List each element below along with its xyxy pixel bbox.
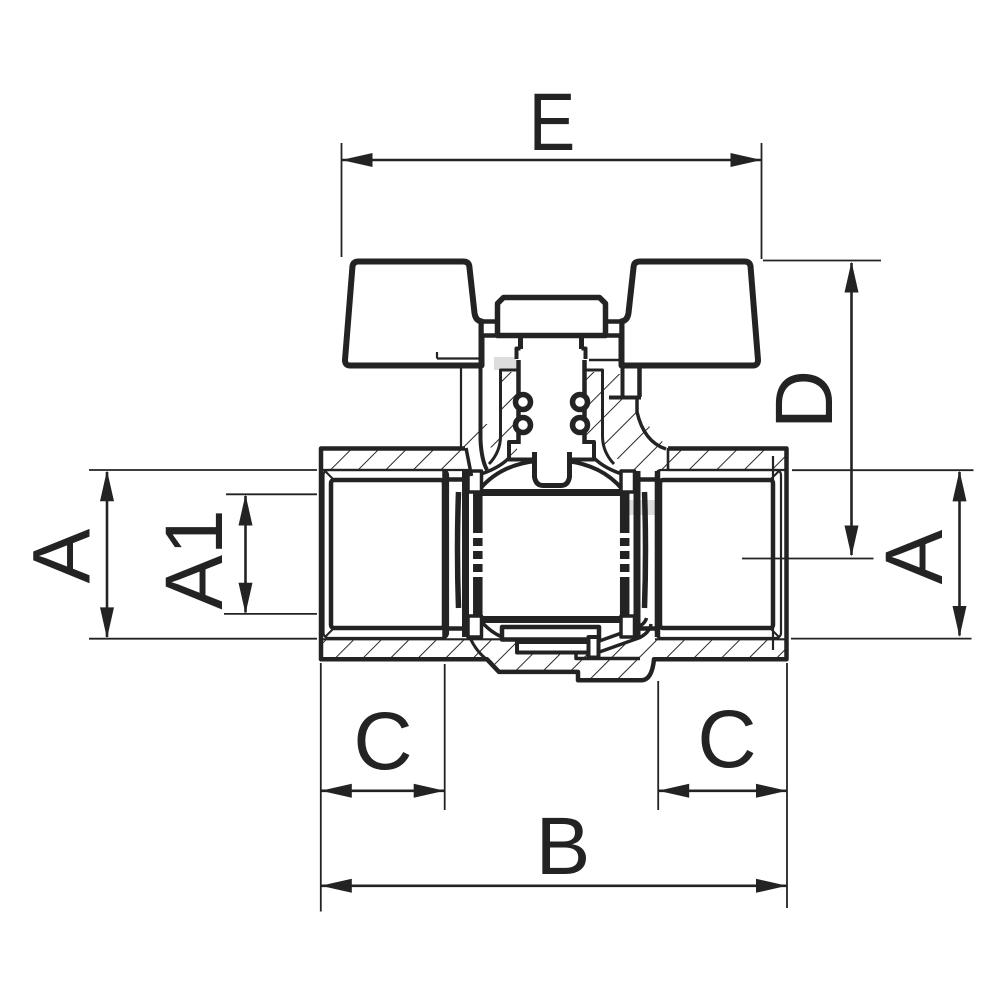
svg-text:A: A bbox=[17, 528, 108, 583]
svg-text:E: E bbox=[529, 77, 575, 169]
svg-text:A: A bbox=[869, 529, 960, 584]
svg-text:B: B bbox=[536, 801, 591, 892]
svg-text:C: C bbox=[353, 696, 412, 787]
svg-text:A1: A1 bbox=[149, 509, 240, 609]
svg-text:C: C bbox=[697, 694, 756, 785]
svg-text:D: D bbox=[759, 370, 850, 429]
